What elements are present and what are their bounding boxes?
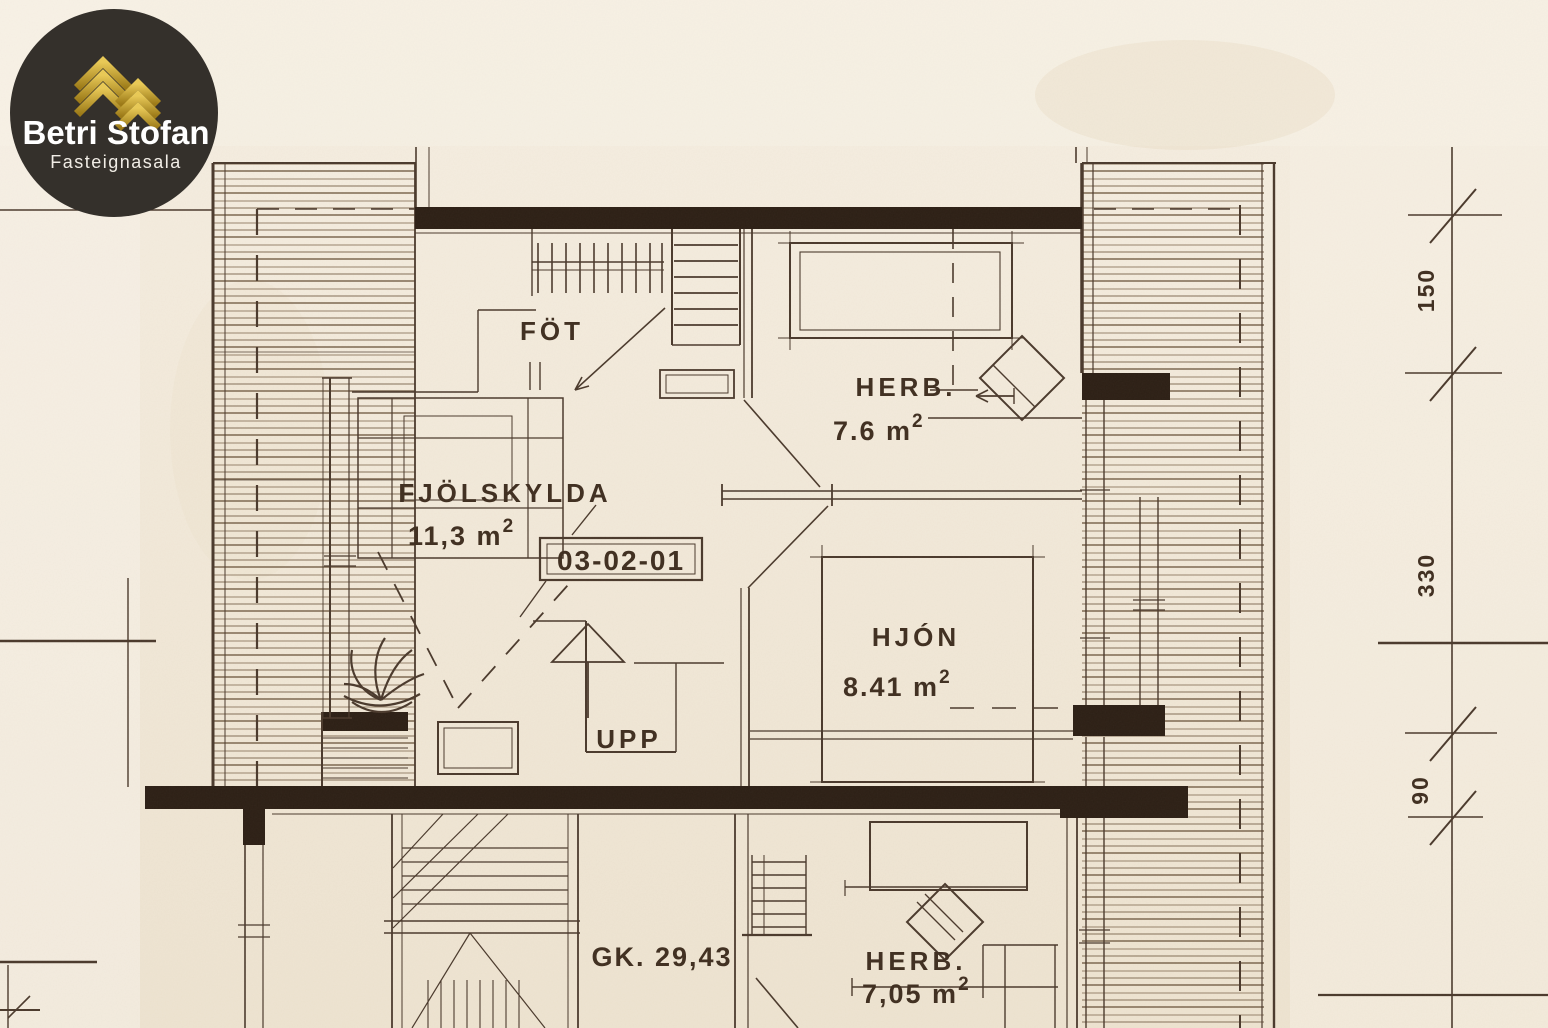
floorplan-drawing: FÖT xyxy=(0,0,1548,1028)
logo-title: Betri Stofan xyxy=(22,114,209,151)
logo-circle xyxy=(10,9,218,217)
brand-logo: Betri Stofan Fasteignasala xyxy=(10,9,218,217)
paper-grain xyxy=(0,0,1548,1028)
logo-subtitle: Fasteignasala xyxy=(50,152,182,172)
floorplan-screenshot: FÖT xyxy=(0,0,1548,1028)
